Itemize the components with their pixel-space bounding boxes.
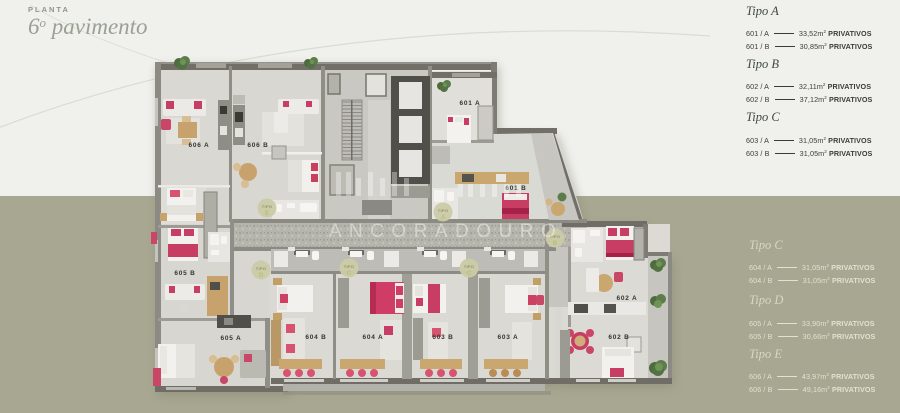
svg-text:603 A: 603 A [497, 334, 518, 341]
svg-text:D: D [259, 273, 264, 279]
svg-text:602 B: 602 B [608, 334, 629, 341]
svg-text:602 A: 602 A [616, 295, 637, 302]
svg-text:606 A: 606 A [188, 142, 209, 149]
svg-text:603 B: 603 B [432, 334, 453, 341]
svg-text:C: C [347, 271, 352, 277]
svg-text:606 B: 606 B [247, 142, 268, 149]
svg-text:ANCORADOURO: ANCORADOURO [329, 221, 564, 242]
svg-text:TIPO: TIPO [438, 208, 449, 213]
svg-text:TIPO: TIPO [262, 204, 273, 209]
svg-text:TIPO: TIPO [344, 264, 355, 269]
svg-text:TIPO: TIPO [464, 264, 475, 269]
svg-text:604 A: 604 A [362, 334, 383, 341]
svg-text:605 B: 605 B [174, 270, 195, 277]
svg-text:TIPO: TIPO [256, 266, 267, 271]
svg-text:604 B: 604 B [305, 334, 326, 341]
svg-text:E: E [265, 211, 269, 217]
svg-text:601 A: 601 A [459, 100, 480, 107]
svg-text:C: C [467, 271, 472, 277]
svg-text:605 A: 605 A [220, 335, 241, 342]
